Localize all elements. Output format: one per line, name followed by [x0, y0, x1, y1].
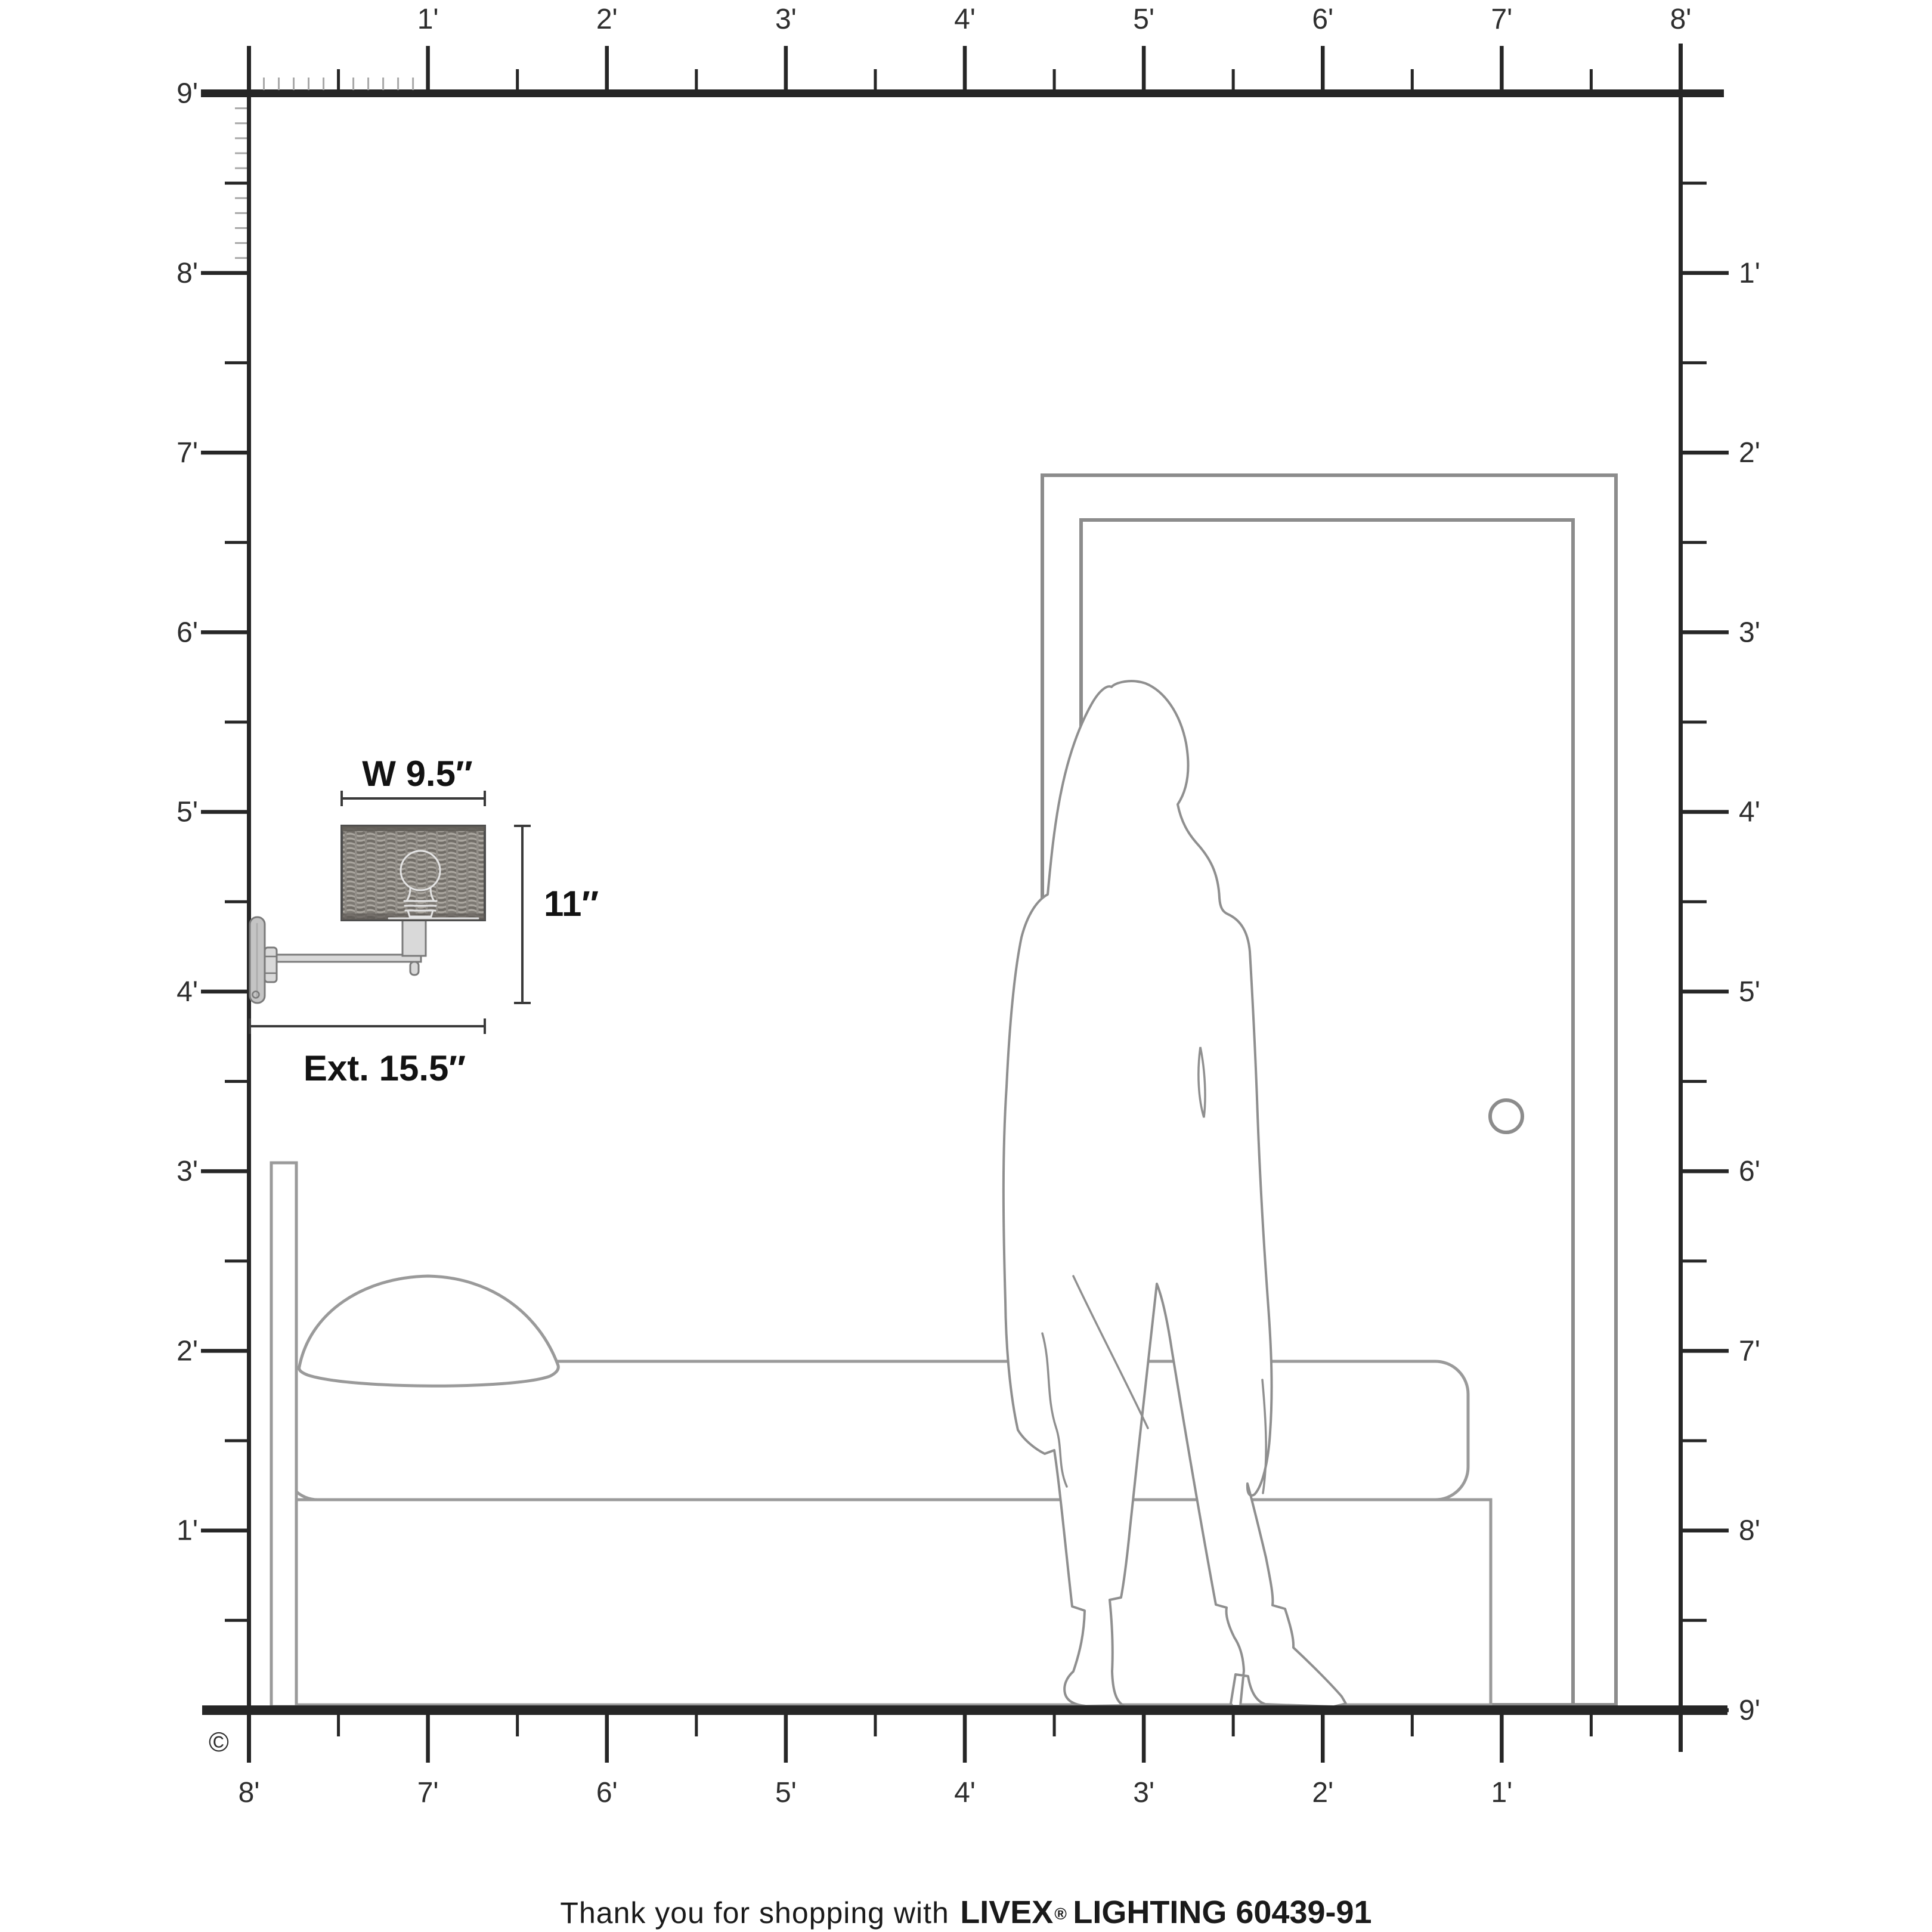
ruler-tick — [1683, 900, 1707, 903]
ruler-tick — [1232, 69, 1235, 90]
ruler-tick — [225, 1259, 247, 1262]
ruler-tick — [201, 630, 247, 634]
ruler-label-right-1: 1' — [1739, 258, 1760, 289]
dimension-width-label: W 9.5″ — [362, 754, 472, 794]
ruler-tick — [247, 1715, 251, 1763]
ruler-tick — [1232, 1715, 1235, 1736]
ruler-tick — [352, 78, 354, 90]
ruler-tick — [1053, 69, 1056, 90]
ruler-tick — [1683, 271, 1729, 275]
ruler-tick — [225, 182, 247, 185]
sconce-swing-arm — [277, 955, 421, 962]
ruler-tick — [1683, 810, 1729, 814]
ruler-tick — [1411, 1715, 1414, 1736]
ruler-label-left-9: 9' — [177, 78, 198, 110]
dimension-height: 11″ — [514, 826, 599, 1003]
ruler-label-left-3: 3' — [177, 1156, 198, 1187]
ruler-label-left-2: 2' — [177, 1335, 198, 1367]
ruler-label-top-6: 6' — [1312, 4, 1333, 35]
ruler-tick — [1321, 1715, 1325, 1763]
ruler-tick — [605, 1715, 609, 1763]
left-wall-line — [247, 46, 251, 1763]
dimension-extension: Ext. 15.5″ — [250, 1018, 485, 1088]
ruler-label-top-2: 2' — [596, 4, 618, 35]
ruler-tick — [235, 257, 247, 259]
ruler-tick — [784, 1715, 788, 1763]
ruler-tick — [1683, 1619, 1707, 1622]
footer-brand: LIVEX — [960, 1894, 1053, 1930]
ruler-tick — [963, 1715, 967, 1763]
ruler-tick — [1683, 541, 1707, 544]
ruler-label-left-5: 5' — [177, 797, 198, 828]
ruler-tick — [1500, 1715, 1504, 1763]
ruler-label-bottom-6: 6' — [596, 1777, 618, 1809]
footer: Thank you for shopping with LIVEX® LIGHT… — [0, 1894, 1932, 1931]
ruler-label-bottom-4: 4' — [954, 1777, 976, 1809]
ruler-label-bottom-2: 2' — [1312, 1777, 1333, 1809]
ruler-tick — [1683, 630, 1729, 634]
ruler-tick — [516, 1715, 519, 1736]
copyright-symbol: © — [209, 1726, 229, 1758]
ruler-tick — [225, 1080, 247, 1083]
door-knob — [1490, 1100, 1522, 1132]
ruler-label-bottom-5: 5' — [775, 1777, 797, 1809]
ruler-tick — [426, 1715, 430, 1763]
ruler-tick — [308, 78, 309, 90]
ruler-tick — [225, 541, 247, 544]
ruler-label-right-7: 7' — [1739, 1335, 1760, 1367]
ceiling-line — [201, 89, 1724, 97]
bed-headboard — [271, 1163, 296, 1707]
ruler-label-right-8: 8' — [1739, 1515, 1760, 1547]
ruler-tick — [1321, 46, 1325, 90]
ruler-tick — [1053, 1715, 1056, 1736]
ruler-label-right-4: 4' — [1739, 797, 1760, 828]
ruler-tick — [201, 271, 247, 275]
ruler-tick — [235, 122, 247, 124]
ruler-label-bottom-1: 1' — [1491, 1777, 1512, 1809]
ruler-tick — [382, 78, 384, 90]
diagram-canvas: 1'2'3'4'5'6'7'8' 8'7'6'5'4'3'2'1' 9'8'7'… — [0, 0, 1932, 1932]
ruler-tick — [337, 69, 340, 90]
footer-model-number: LIGHTING 60439-91 — [1073, 1894, 1371, 1930]
scale-diagram-page: 1'2'3'4'5'6'7'8' 8'7'6'5'4'3'2'1' 9'8'7'… — [0, 0, 1932, 1932]
sconce-stem-tail — [410, 962, 419, 975]
ruler-tick — [1590, 1715, 1593, 1736]
ruler-tick — [278, 78, 280, 90]
floor-line — [202, 1705, 1727, 1715]
ruler-tick — [426, 46, 430, 90]
ruler-label-left-1: 1' — [177, 1515, 198, 1547]
ruler-label-top-4: 4' — [954, 4, 976, 35]
ruler-tick — [1142, 1715, 1146, 1763]
ruler-label-top-8: 8' — [1670, 4, 1692, 35]
ruler-tick — [1683, 990, 1729, 994]
ruler-tick — [235, 242, 247, 244]
ruler-label-left-4: 4' — [177, 976, 198, 1008]
ruler-tick — [1679, 46, 1683, 90]
ruler-bottom: 8'7'6'5'4'3'2'1' — [239, 1715, 1593, 1809]
ruler-tick — [695, 1715, 698, 1736]
ruler-tick — [235, 227, 247, 229]
ruler-tick — [874, 1715, 877, 1736]
wall-sconce — [250, 826, 485, 1003]
ruler-tick — [1683, 451, 1729, 455]
ruler-tick — [695, 69, 698, 90]
ruler-tick — [201, 1169, 247, 1174]
ruler-tick — [201, 451, 247, 455]
ruler-tick — [1142, 46, 1146, 90]
ruler-tick — [225, 1619, 247, 1622]
ruler-tick — [225, 720, 247, 723]
ruler-tick — [1683, 1169, 1729, 1174]
ruler-tick — [201, 91, 247, 95]
ruler-tick — [235, 152, 247, 154]
ruler-tick — [1683, 1708, 1729, 1713]
ruler-tick — [1683, 361, 1707, 364]
ruler-tick — [367, 78, 369, 90]
ruler-label-top-1: 1' — [417, 4, 439, 35]
ruler-tick — [516, 69, 519, 90]
ruler-tick — [201, 990, 247, 994]
ruler-tick — [235, 137, 247, 139]
ruler-tick — [605, 46, 609, 90]
ruler-tick — [235, 107, 247, 109]
ruler-tick — [784, 46, 788, 90]
right-wall-line — [1679, 44, 1683, 1752]
ruler-tick — [323, 78, 324, 90]
ruler-tick — [963, 46, 967, 90]
ruler-label-bottom-3: 3' — [1133, 1777, 1154, 1809]
ruler-tick — [293, 78, 295, 90]
bed-pillow — [299, 1276, 559, 1386]
footer-thanks-text: Thank you for shopping with — [560, 1896, 949, 1930]
sconce-hinge — [265, 948, 277, 982]
ruler-tick — [225, 1439, 247, 1442]
ruler-label-left-7: 7' — [177, 437, 198, 469]
ruler-tick — [235, 168, 247, 169]
ruler-tick — [1683, 1349, 1729, 1353]
ruler-tick — [263, 78, 265, 90]
ruler-right: 1'2'3'4'5'6'7'8'9' — [1683, 182, 1760, 1726]
bed — [271, 1163, 1491, 1707]
ruler-label-top-7: 7' — [1491, 4, 1512, 35]
footer-registered-mark: ® — [1054, 1905, 1067, 1923]
ruler-left: 9'8'7'6'5'4'3'2'1' — [177, 78, 247, 1622]
ruler-tick — [1590, 69, 1593, 90]
ruler-tick — [397, 78, 399, 90]
ruler-tick — [337, 1715, 340, 1736]
dimension-extension-label: Ext. 15.5″ — [304, 1048, 466, 1088]
ruler-tick — [1683, 1259, 1707, 1262]
ruler-tick — [201, 1349, 247, 1353]
sconce-stem — [402, 920, 426, 956]
ruler-tick — [874, 69, 877, 90]
ruler-tick — [1683, 1439, 1707, 1442]
ruler-tick — [225, 900, 247, 903]
dimension-height-label: 11″ — [544, 884, 599, 924]
ruler-tick — [225, 361, 247, 364]
ruler-label-right-3: 3' — [1739, 617, 1760, 648]
ruler-tick — [201, 1528, 247, 1532]
ruler-tick — [235, 197, 247, 199]
dimension-width: W 9.5″ — [342, 754, 485, 806]
ruler-tick — [1683, 182, 1707, 185]
ruler-label-top-3: 3' — [775, 4, 797, 35]
ruler-label-right-9: 9' — [1739, 1695, 1760, 1726]
ruler-tick — [1411, 69, 1414, 90]
ruler-label-top-5: 5' — [1133, 4, 1154, 35]
ruler-tick — [412, 78, 414, 90]
ruler-label-left-8: 8' — [177, 258, 198, 289]
ruler-tick — [1683, 720, 1707, 723]
ruler-top: 1'2'3'4'5'6'7'8' — [263, 4, 1691, 90]
ruler-tick — [1683, 1528, 1729, 1532]
ruler-tick — [1500, 46, 1504, 90]
ruler-tick — [235, 212, 247, 214]
ruler-label-bottom-8: 8' — [239, 1777, 260, 1809]
ruler-tick — [1683, 1080, 1707, 1083]
ruler-label-right-6: 6' — [1739, 1156, 1760, 1187]
ruler-label-left-6: 6' — [177, 617, 198, 648]
sconce-shade-top-band — [342, 826, 485, 831]
ruler-label-right-5: 5' — [1739, 976, 1760, 1008]
ruler-tick — [201, 810, 247, 814]
ruler-label-bottom-7: 7' — [417, 1777, 439, 1809]
ruler-label-right-2: 2' — [1739, 437, 1760, 469]
